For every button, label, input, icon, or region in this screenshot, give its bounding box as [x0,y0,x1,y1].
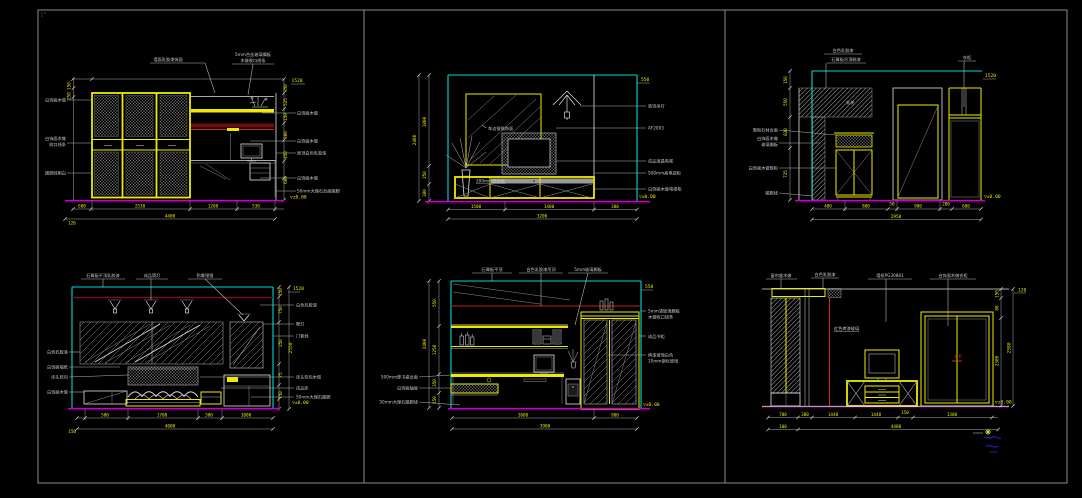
note-label: 白饰面木做 [45,135,67,142]
bottom-dimension-row: 400 800 50 900 200 600 2950 [810,200,982,221]
dim-label: 380 [422,189,428,197]
wardrobe-door-panel [160,96,187,137]
top-annotations: 石膏板平顶乳胶漆 成品筒灯 防雾银镜 [81,272,243,315]
speakers-icon [533,330,561,344]
dim-label: 150 [68,429,76,435]
note-label: 白色乳胶漆 [296,302,317,309]
note-label: 床头软包 [51,374,69,381]
elevation-bed-wall: 石膏板平顶乳胶漆 成品筒灯 防雾银镜 白色乳胶漆 白饰面墙纸 床头软包 白饰面木… [47,272,330,435]
dim-label: 1800 [422,116,428,127]
dim-label: 900 [914,204,922,210]
note-label: 窗帘盒木做 [771,272,793,279]
desktop-monitor-icon [241,144,262,161]
note-label: 拉手 [954,354,962,359]
dim-label: 750 [278,391,284,399]
dim-label: 600 [283,176,289,184]
dim-label: 350 [283,84,289,92]
corner-marks [41,12,45,16]
shoe-cabinet [834,133,874,200]
sheet-border [38,10,1067,483]
bookcase [581,299,639,409]
bottom-dimension-row: 3000 900 3900 [450,409,638,431]
tv-screen [865,350,899,381]
note-label: 50mm大理石踢脚 [296,394,330,401]
note-label: 5mm合金玻璃搁板 [235,51,272,58]
pendant-lamp-icon [553,91,581,120]
note-label: 白饰面木做 [297,138,319,145]
dim-label: 1400 [544,204,555,210]
dim-total-label: 4400 [165,214,176,220]
headboard [128,367,198,385]
note-label: 50mm大理石台面踢脚 [297,188,340,195]
note-label: 5mm清玻璃搁板 [648,308,681,315]
note-label: 成品液晶电视 [648,158,674,165]
note-label: 墙纸PG30881 [876,272,904,279]
dim-label: 80 [995,305,1001,311]
note-label: 白饰面木做鞋柜 [749,165,778,172]
note-label: 白饰面墙纸 [47,364,69,371]
dim-label: 200 [942,202,950,208]
desk-area [191,93,276,200]
elevation-bedroom-wardrobe: 拉手 窗帘盒木做 白色乳胶漆 墙纸PG30881 白饰面木做衣柜 红色烤漆玻璃 … [762,271,1027,452]
note-label: 床头软包木做 [296,374,322,381]
dim-total-label: 3900 [540,424,551,430]
wardrobe-cabinet [92,93,190,198]
drawer-front [227,128,239,131]
downlight-icon [108,300,194,313]
note-label: 成品床 [296,385,309,392]
bottom-dimension-row: 500 1700 300 1000 4000 150 [68,409,274,435]
dim-label: 550 [432,299,438,307]
desk [451,349,580,404]
dim-label: 1440 [828,412,839,418]
note-label: 成品书柜 [648,333,665,340]
dim-label: 100 [779,424,787,430]
dim-label: 300 [283,131,289,139]
bulkhead-hatch [828,289,841,298]
note-label: 烤漆玻璃白色 [648,352,674,359]
note-label: 防雾银镜 [197,272,215,279]
mirror-wall [80,322,223,364]
bottom-dimension-row: 700 300 1440 1440 150 1300 100 4480 [766,410,999,431]
cad-sheet: 150 250 [0,0,1082,498]
note-label: 白色乳胶漆 [833,47,854,54]
accent-band [191,124,274,128]
dim-total-label: 2950 [891,214,902,220]
note-label: 10mm钢化玻璃 [648,358,678,365]
dim-label: 1250 [432,344,438,355]
note-label: 白色乳胶漆 [815,271,836,278]
dim-label: 700 [779,412,787,418]
dim-label: 400 [824,204,832,210]
note-label: 白饰面抽屉 [397,385,418,392]
dim-label: 530 [252,204,260,210]
curtain-box [772,289,825,297]
dim-label: 550 [645,284,654,290]
dim-total-label: 4480 [891,424,902,430]
bed [126,367,200,406]
note-label: 石膏板平顶 [482,266,504,273]
dim-total-label: 2400 [412,134,418,145]
elevation-tv-wall: 2400 1800 250 380 车边银镜饰面 [412,73,682,220]
level-mark: ▽±0.00 [639,194,656,200]
dim-total-label: 2400 [422,338,428,349]
wardrobe-door-panel [126,96,153,137]
note-label: 壁灯 [296,321,305,328]
note-label: 车边银镜饰面 [488,125,513,132]
side-cabinet [224,375,270,406]
plant-icon [568,349,578,368]
dim-label: 820 [783,128,789,136]
dim-label: 750 [278,306,284,314]
dim-label: 250 [422,171,428,179]
dim-label: 150 [901,410,909,416]
desk-pedestal [250,163,270,180]
door-leaf [893,88,942,200]
dim-label: 150 [278,288,284,296]
wardrobe-door-panel [160,152,187,195]
note-label: 踢脚线刷白 [45,170,66,177]
dim-label: 1200 [208,204,219,210]
note-label: 原顶白色乳胶漆 [297,150,326,157]
note-label: 装饰吊灯 [648,103,666,110]
note-label: 踢脚线 [765,190,778,197]
dim-label: 150 [783,76,789,84]
dim-label: 150 [995,290,1001,298]
dim-label: 1520 [291,78,302,84]
wardrobe-door-panel [95,96,119,137]
bottles-icon [460,332,474,345]
note-label: 白饰面木做 [757,135,779,142]
flower-vase-icon [250,97,268,107]
note-label: 500mm厚书桌台面 [381,374,418,381]
dim-label: 2380 [995,355,1001,366]
dim-label: 150 [67,82,73,90]
top-annotations: 墙面乳胶漆饰面 5mm合金玻璃搁板 木做收口线条 [150,51,274,95]
tv-cabinet [847,381,917,406]
glass-shelf [191,109,274,113]
dim-label: 350 [432,379,438,387]
bench [84,391,127,404]
dim-label: 2530 [135,204,146,210]
dim-label: 1500 [471,204,482,210]
note-label: 白色乳胶漆 [47,349,68,356]
keyboard-tray [524,379,546,382]
dim-label: 900 [611,413,619,419]
dim-label: 800 [862,204,870,210]
revision-scribble [973,429,1001,452]
dim-total-label: 3200 [537,214,548,220]
note-label: 白饰面木做衣柜 [938,272,967,279]
left-dimension-column: 2400 1800 250 380 [412,73,431,202]
note-label: 成品筒灯 [144,272,162,279]
dim-label: 1520 [985,73,996,79]
note-label: 5mm玻璃搁板 [574,266,602,273]
dim-label: 525 [283,98,289,106]
note-label: 50mm大理石踢脚线 [379,399,418,406]
left-annotations [779,130,836,196]
note-label: 石膏板吊顶刷漆 [831,56,860,63]
tv-screen [502,133,556,174]
dim-label: 1440 [871,412,882,418]
dim-label: 550 [641,77,650,83]
desktop-monitor-icon [534,355,554,374]
bulkhead-hatch [799,88,872,117]
dim-total-label: 2550 [288,342,294,353]
elevation-study-wall: 石膏板平顶 白色乳胶漆吊顶 5mm玻璃搁板 500mm厚书桌台面 白饰面抽屉 5… [379,266,680,431]
dim-label: 300 [801,412,809,418]
nightstand [201,392,221,404]
note-label: 门套线 [296,333,309,340]
dim-label: 250 [278,339,284,347]
note-label: 白饰面木做 [297,110,319,117]
note-label: 衣柜 [963,54,971,61]
dim-total-label: 4000 [165,424,176,430]
dim-label: 3000 [518,413,529,419]
note-label: 白色乳胶漆吊顶 [526,266,556,273]
pillows [135,395,191,399]
level-mark: ▽±0.00 [290,195,307,201]
cad-drawing-canvas: 150 250 [0,0,1082,498]
dim-label: 120 [68,221,76,227]
dim-label: 1700 [157,413,168,419]
note-label: AF2003 [648,126,664,131]
wardrobe-sliding-doors: 拉手 [921,312,993,406]
dim-label: 1520 [293,286,304,292]
note-label: 红色烤漆玻璃 [834,325,859,332]
glass-shelf [451,326,568,329]
note-label: 白饰面木做 [47,389,69,396]
wardrobe-door-panel [95,152,119,195]
note-label: 500mm高电视柜 [648,170,681,177]
dim-label: 1000 [241,413,252,419]
dim-label: 600 [962,204,970,210]
dim-label: 150 [432,396,438,404]
dim-label: 120 [1018,288,1027,294]
note-label: 白饰面木做电视柜 [648,186,682,193]
entry-wardrobe [949,88,981,200]
dim-label: 50 [889,202,895,208]
mirror-column [771,298,800,406]
dim-label: 550 [783,98,789,106]
wardrobe-door-panel [126,152,153,195]
level-mark: ▽±0.00 [292,400,309,406]
note-label: 玄关 [846,99,854,106]
left-dimension-column: 2400 550 1250 350 150 [422,279,441,409]
note-label: 鞋柜石材台面 [753,127,778,134]
dim-label: 300 [205,413,213,419]
level-mark: ▽±0.00 [984,194,1001,200]
note-label: 墙面乳胶漆饰面 [153,56,182,63]
dim-label: 500 [101,413,109,419]
note-label: 白饰面木做 [45,97,67,104]
left-dimension-column: 150 550 820 725 [783,69,792,201]
bottom-dimension-row: 600 2530 1200 530 4400 120 [63,200,284,227]
dim-label: 150 [283,113,289,121]
note-label: 木做收口线条 [240,57,266,64]
bottles-icon [600,299,613,310]
note-label: 收口线条 [49,141,67,148]
dim-label: 250 [67,92,73,100]
right-dimension-column: 150 80 2380 2580 120 ▽±0.00 [995,287,1027,407]
dim-label: 1300 [947,412,958,418]
wall-shelves [451,325,568,349]
note-label: 木做收口线条 [648,314,674,321]
elevation-entry: 玄关 白色乳胶漆 石膏板吊顶刷漆 衣柜 [749,47,1001,221]
cabinet-drawer [836,135,872,147]
note-label: 石膏板平顶乳胶漆 [86,272,120,279]
dim-label: 600 [78,204,86,210]
bottom-dimension-row: 1500 1400 300 3200 [446,201,638,221]
mirror-cabinet [230,314,263,368]
note-label: 玻璃搁板 [761,141,779,148]
note-label: 白饰面木做 [297,175,319,182]
side-drawer-cabinet [451,384,498,393]
dim-label: 450 [283,151,289,159]
wall-column-hatch [813,117,826,200]
level-mark: ▽±0.00 [995,400,1012,406]
tv-cabinet: 200mm厚台面 [455,177,594,198]
dim-label: 725 [783,170,789,178]
dim-label: 300 [611,204,619,210]
elevation-wardrobe-desk: 150 250 [45,51,340,227]
dim-total-label: 2580 [1007,342,1013,353]
level-mark: ▽±0.00 [643,402,660,408]
